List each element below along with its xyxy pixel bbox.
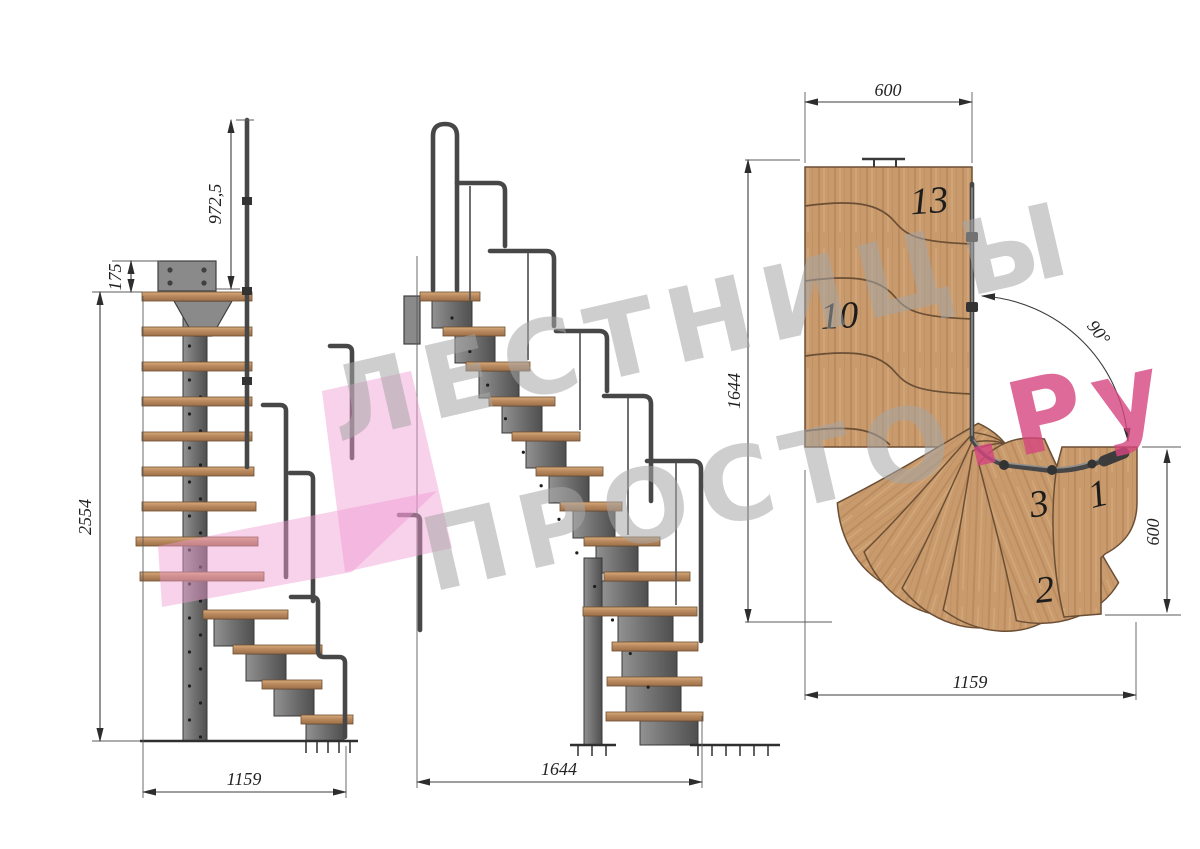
anchor-bolts xyxy=(306,741,350,753)
dim-plan-length: 1644 xyxy=(724,373,744,409)
watermark-domain-suffix: .Ру xyxy=(947,328,1184,493)
dim-total-height: 2554 xyxy=(75,499,95,535)
dim-tread-width: 600 xyxy=(1143,519,1163,546)
anchor-bolts xyxy=(578,745,768,756)
staircase-technical-drawing: 972,5 175 2554 1159 xyxy=(0,0,1200,849)
handrail-loop xyxy=(433,124,457,290)
dim-footprint-depth: 1159 xyxy=(227,769,262,789)
dim-footprint-width: 1644 xyxy=(541,759,577,779)
drawing-canvas: 972,5 175 2554 1159 xyxy=(0,0,1200,849)
front-support-column xyxy=(584,558,602,745)
dim-handrail-height: 972,5 xyxy=(205,184,225,225)
top-mounting-plate xyxy=(158,261,216,291)
dim-landing-offset: 175 xyxy=(105,264,125,291)
plan-top-bracket xyxy=(862,159,905,167)
dim-plan-width: 1159 xyxy=(953,672,988,692)
dim-landing-width: 600 xyxy=(875,80,902,100)
